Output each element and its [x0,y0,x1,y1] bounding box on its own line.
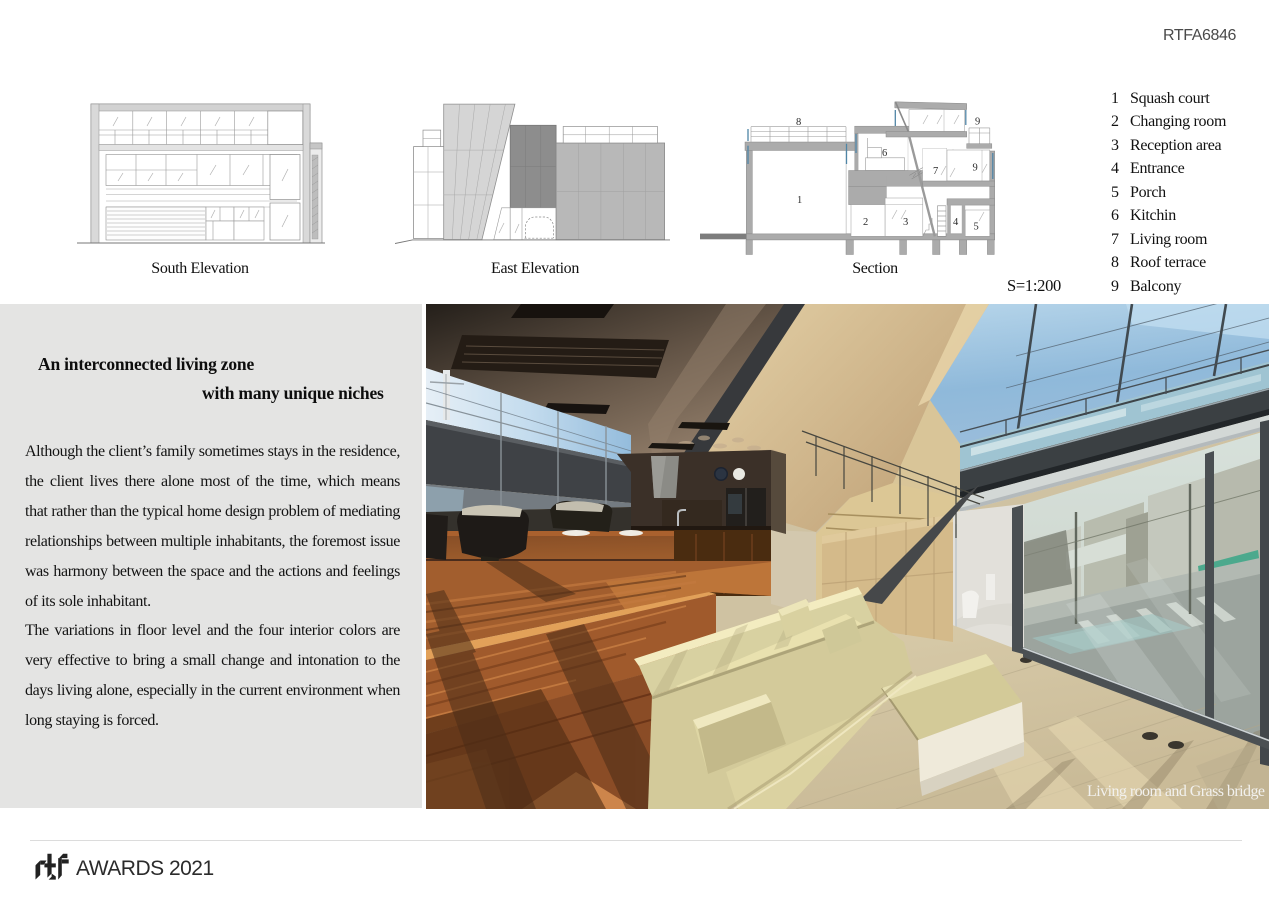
svg-text:8: 8 [796,117,801,128]
svg-text:2: 2 [863,217,868,228]
svg-text:3: 3 [903,217,908,228]
svg-text:9: 9 [975,117,980,128]
svg-text:7: 7 [933,166,938,177]
svg-text:4: 4 [953,217,959,228]
svg-text:Living room and Grass bridge: Living room and Grass bridge [1087,783,1265,800]
svg-text:9: 9 [973,163,978,174]
svg-text:6: 6 [882,148,887,159]
svg-text:1: 1 [797,195,802,206]
svg-text:5: 5 [974,222,979,233]
